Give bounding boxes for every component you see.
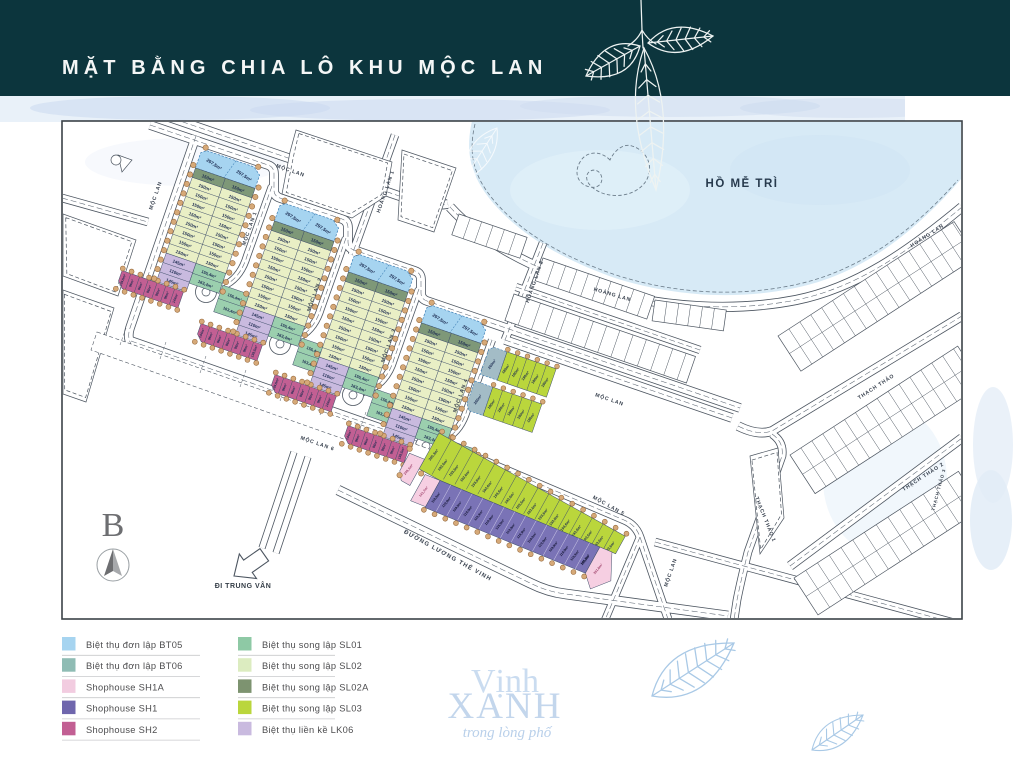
svg-text:Shophouse SH1A: Shophouse SH1A: [86, 682, 165, 692]
svg-text:XANH: XANH: [448, 686, 563, 727]
svg-text:Biệt thụ song lập SL02A: Biệt thụ song lập SL02A: [262, 682, 369, 692]
svg-text:Shophouse SH2: Shophouse SH2: [86, 725, 158, 735]
svg-text:ĐI TRUNG VÂN: ĐI TRUNG VÂN: [215, 581, 272, 590]
svg-text:Biệt thụ song lập SL03: Biệt thụ song lập SL03: [262, 704, 362, 714]
svg-text:Biệt thụ song lập SL02: Biệt thụ song lập SL02: [262, 661, 362, 671]
svg-text:Shophouse SH1: Shophouse SH1: [86, 704, 158, 714]
svg-text:trong lòng phố: trong lòng phố: [463, 725, 553, 741]
svg-text:MẶT BẰNG CHIA LÔ KHU MỘC LAN: MẶT BẰNG CHIA LÔ KHU MỘC LAN: [62, 55, 547, 79]
svg-text:B: B: [102, 507, 125, 544]
svg-text:Biệt thụ song lập SL01: Biệt thụ song lập SL01: [262, 640, 362, 650]
svg-text:Biệt thụ liền kề LK06: Biệt thụ liền kề LK06: [262, 725, 354, 735]
svg-text:Biệt thụ đơn lập BT06: Biệt thụ đơn lập BT06: [86, 661, 183, 671]
svg-text:HỒ MỄ TRÌ: HỒ MỄ TRÌ: [706, 177, 779, 190]
svg-text:Biệt thụ đơn lập BT05: Biệt thụ đơn lập BT05: [86, 640, 183, 650]
